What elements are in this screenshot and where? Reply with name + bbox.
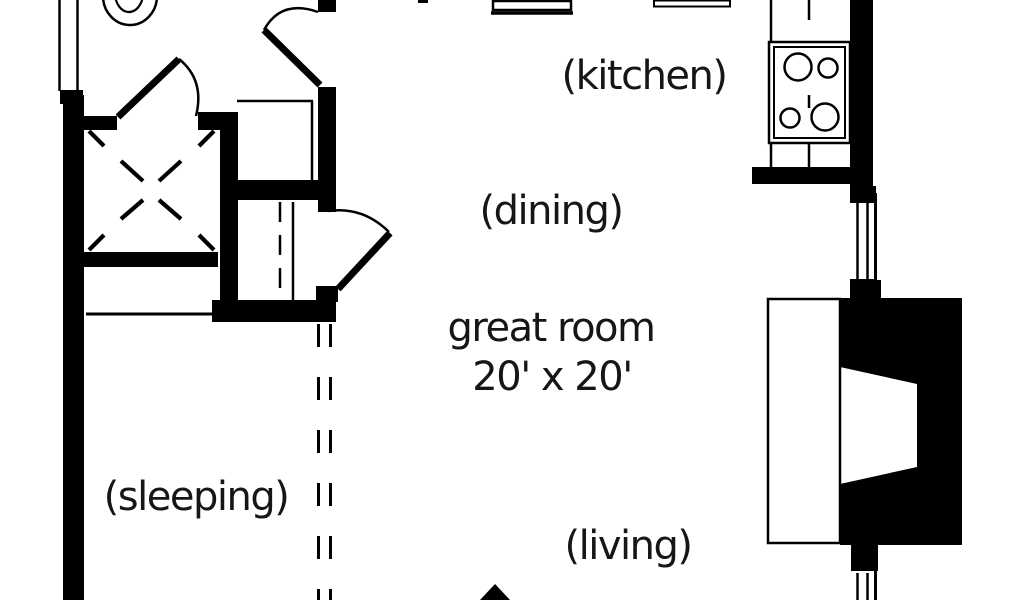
- right-exterior-wall: [850, 0, 873, 202]
- fireplace-icon: [768, 298, 962, 545]
- left-window-icon: [60, 0, 84, 104]
- right-lower-window-icon: [858, 570, 876, 600]
- interior-walls: [63, 0, 338, 322]
- great-room-door-icon: [328, 210, 390, 289]
- toilet-icon: [103, 0, 157, 25]
- hall-closet-door-icon: [118, 59, 198, 117]
- left-exterior-wall: [63, 95, 84, 600]
- room-label-dining: (dining): [480, 191, 623, 231]
- dashed-opening-line: [319, 324, 331, 600]
- room-label-living: (living): [565, 526, 692, 566]
- bathroom-door-icon: [264, 8, 320, 85]
- x-closet-marker-icon: [89, 131, 214, 250]
- kitchen-island-counter: [491, 1, 573, 13]
- cooktop-icon: [769, 42, 850, 143]
- room-label-sleeping: (sleeping): [104, 477, 289, 517]
- right-upper-window-icon: [850, 186, 876, 296]
- kitchen-dining-wall: [752, 167, 853, 184]
- room-label-kitchen: (kitchen): [562, 56, 727, 96]
- room-label-great-room-size: 20' x 20': [472, 357, 631, 397]
- partition-lines: [86, 101, 313, 314]
- floor-plan: (kitchen) (dining) great room 20' x 20' …: [0, 0, 1024, 600]
- wall-stub-below-fireplace: [851, 545, 878, 571]
- room-label-great-room: great room: [448, 308, 655, 348]
- upper-counter: [654, 1, 730, 7]
- entry-arrow-icon: [480, 584, 510, 600]
